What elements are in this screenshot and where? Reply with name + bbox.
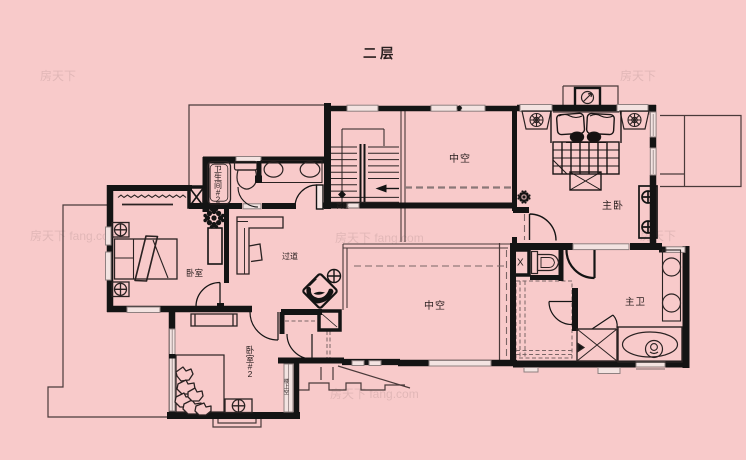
svg-text:卧室: 卧室 bbox=[186, 268, 204, 278]
svg-text:首层: 首层 bbox=[336, 201, 350, 210]
svg-text:2: 2 bbox=[216, 196, 221, 205]
svg-text:房天下: 房天下 bbox=[40, 68, 76, 83]
svg-text:主卧: 主卧 bbox=[602, 199, 624, 212]
svg-text:X: X bbox=[517, 258, 524, 269]
svg-text:房天下 fang.com: 房天下 fang.com bbox=[330, 386, 419, 401]
svg-text:房天下 fang.com: 房天下 fang.com bbox=[335, 230, 424, 245]
svg-text:主卫: 主卫 bbox=[625, 296, 646, 308]
svg-text:空: 空 bbox=[284, 389, 289, 396]
svg-text:二层: 二层 bbox=[363, 46, 397, 61]
svg-text:过道: 过道 bbox=[282, 251, 298, 261]
svg-text:房天下: 房天下 bbox=[640, 228, 676, 243]
svg-text:2: 2 bbox=[248, 369, 253, 379]
svg-text:中空: 中空 bbox=[449, 152, 471, 165]
svg-text:中空: 中空 bbox=[424, 299, 446, 312]
svg-text:房天下: 房天下 bbox=[620, 68, 656, 83]
